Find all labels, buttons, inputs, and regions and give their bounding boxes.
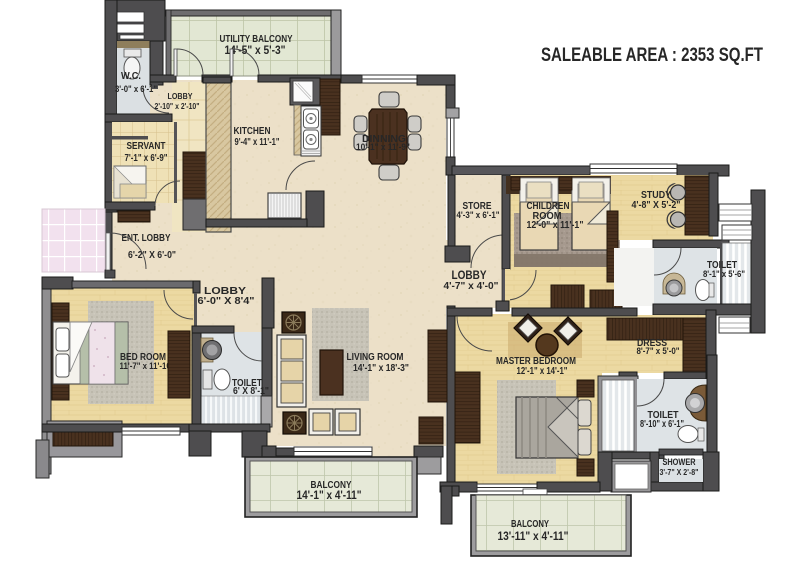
svg-text:7'-1" x 6'-9": 7'-1" x 6'-9" bbox=[125, 153, 168, 164]
svg-text:SALEABLE AREA : 2353 SQ.FT: SALEABLE AREA : 2353 SQ.FT bbox=[541, 45, 763, 66]
svg-text:10'-1" x 11'-9": 10'-1" x 11'-9" bbox=[356, 142, 410, 153]
svg-text:9'-4" x 11'-1": 9'-4" x 11'-1" bbox=[235, 137, 280, 148]
svg-text:6'-0" X 8'4": 6'-0" X 8'4" bbox=[198, 295, 255, 307]
svg-text:6'-2" X 6'-0": 6'-2" X 6'-0" bbox=[128, 249, 176, 261]
svg-text:8'-7" x 5'-0": 8'-7" x 5'-0" bbox=[637, 346, 680, 356]
svg-text:8'-10" x 6'-1": 8'-10" x 6'-1" bbox=[640, 419, 684, 430]
svg-text:SERVANT: SERVANT bbox=[127, 141, 166, 152]
svg-text:KITCHEN: KITCHEN bbox=[234, 126, 271, 137]
svg-text:W.C.: W.C. bbox=[121, 71, 141, 82]
svg-text:2'-10" x 2'-10": 2'-10" x 2'-10" bbox=[155, 101, 200, 111]
svg-text:4'-8" X 5'-2": 4'-8" X 5'-2" bbox=[632, 200, 681, 211]
svg-text:4'-3" x 6'-1": 4'-3" x 6'-1" bbox=[457, 210, 500, 221]
svg-text:3'-7" X 2'-8": 3'-7" X 2'-8" bbox=[660, 467, 699, 477]
svg-text:13'-11" x 4'-11": 13'-11" x 4'-11" bbox=[498, 529, 569, 543]
svg-text:6' X 8'-1": 6' X 8'-1" bbox=[233, 386, 269, 397]
svg-text:12'-1" x 14'-1": 12'-1" x 14'-1" bbox=[517, 366, 568, 377]
svg-text:LIVING ROOM: LIVING ROOM bbox=[347, 352, 404, 363]
svg-text:LOBBY: LOBBY bbox=[168, 92, 194, 101]
svg-text:4'-7" x 4'-0": 4'-7" x 4'-0" bbox=[444, 280, 499, 292]
svg-text:11'-7" x 11'-10": 11'-7" x 11'-10" bbox=[120, 361, 175, 372]
svg-text:14'-5" x 5'-3": 14'-5" x 5'-3" bbox=[225, 43, 286, 57]
svg-text:12'-0" x 11'-1": 12'-0" x 11'-1" bbox=[527, 220, 584, 231]
svg-text:3'-0" x 6'-1": 3'-0" x 6'-1" bbox=[115, 84, 157, 95]
svg-text:14'-1" x 4'-11": 14'-1" x 4'-11" bbox=[297, 488, 362, 502]
svg-text:14'-1" x 18'-3": 14'-1" x 18'-3" bbox=[353, 363, 409, 374]
svg-text:8'-1" x 5'-6": 8'-1" x 5'-6" bbox=[703, 269, 745, 279]
